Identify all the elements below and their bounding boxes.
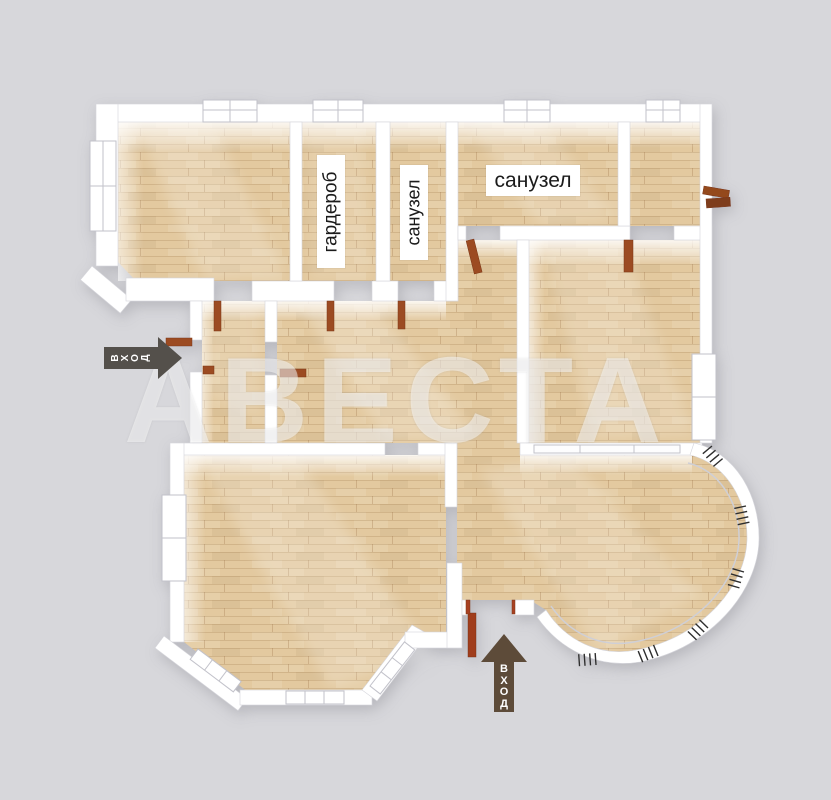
door-bathroom-small [398, 301, 405, 329]
entrance-arrow-right-head [158, 337, 182, 379]
window-left-bedroom [90, 141, 116, 231]
room-label-bathroom-large: санузел [486, 165, 580, 196]
entrance-arrow-up-head [481, 634, 527, 662]
wall-bedroom-right-left [517, 240, 529, 443]
door-main-entrance-leaf [468, 613, 476, 657]
window-top-storage [646, 100, 680, 122]
wall-hall-left-lower [190, 372, 202, 443]
wall-band2-b [500, 226, 630, 240]
window-left-livingroom [162, 495, 186, 581]
door-main-jamb-left [466, 600, 470, 614]
window-round-top-strip [534, 445, 680, 453]
window-right-bedroom [692, 354, 716, 440]
wall-band-b [252, 281, 334, 301]
wall-c-d [446, 122, 458, 301]
floor-plan-page: АВЕСТА гардероб санузел санузел ВХОД ВХО… [0, 0, 831, 800]
main-entrance-label: ВХОД [498, 664, 510, 710]
room-label-wardrobe-text: гардероб [320, 171, 342, 252]
wall-living-right-upper [445, 443, 457, 507]
entrance-arrow-right-body: ВХОД [104, 347, 158, 369]
shelf-storage-exterior [706, 197, 731, 208]
wall-hall-corridor-lower [265, 375, 277, 443]
room-label-bathroom-small: санузел [400, 165, 428, 260]
wall-hall-left-upper [190, 301, 202, 340]
entrance-arrow-up-body: ВХОД [494, 662, 514, 712]
window-top-bedroom [203, 100, 257, 122]
door-main-jamb-right [512, 600, 515, 614]
wall-vestibule-b [512, 600, 534, 615]
entrance-arrow-right-icon: ВХОД [104, 336, 182, 380]
wall-band-a [126, 278, 214, 301]
entrance-arrow-up-icon: ВХОД [481, 634, 527, 714]
wall-living-top [170, 443, 385, 455]
door-side-entrance-leaf2 [203, 366, 214, 374]
door-bedroom-right [624, 240, 633, 272]
wall-b-c [376, 122, 390, 281]
door-bedroom-topleft [214, 301, 221, 331]
wall-band-c [372, 281, 398, 301]
window-top-bathroom-large [504, 100, 550, 122]
wall-outer-top [96, 104, 712, 122]
floor-plan-canvas [0, 0, 831, 800]
room-label-bathroom-small-text: санузел [404, 180, 425, 246]
door-wardrobe [327, 301, 334, 331]
wall-hall-corridor-upper [265, 301, 277, 342]
wall-band2-a [458, 226, 466, 240]
room-label-wardrobe: гардероб [317, 155, 345, 268]
room-label-bathroom-large-text: санузел [495, 169, 572, 193]
door-hallway-corridor [280, 369, 306, 377]
side-entrance-label: ВХОД [111, 352, 151, 364]
wall-d-e [618, 122, 630, 226]
window-top-wardrobe [313, 100, 363, 122]
wall-vestibule-left [447, 563, 462, 648]
window-bay-bottom [286, 691, 344, 704]
wall-a-b [290, 122, 302, 281]
